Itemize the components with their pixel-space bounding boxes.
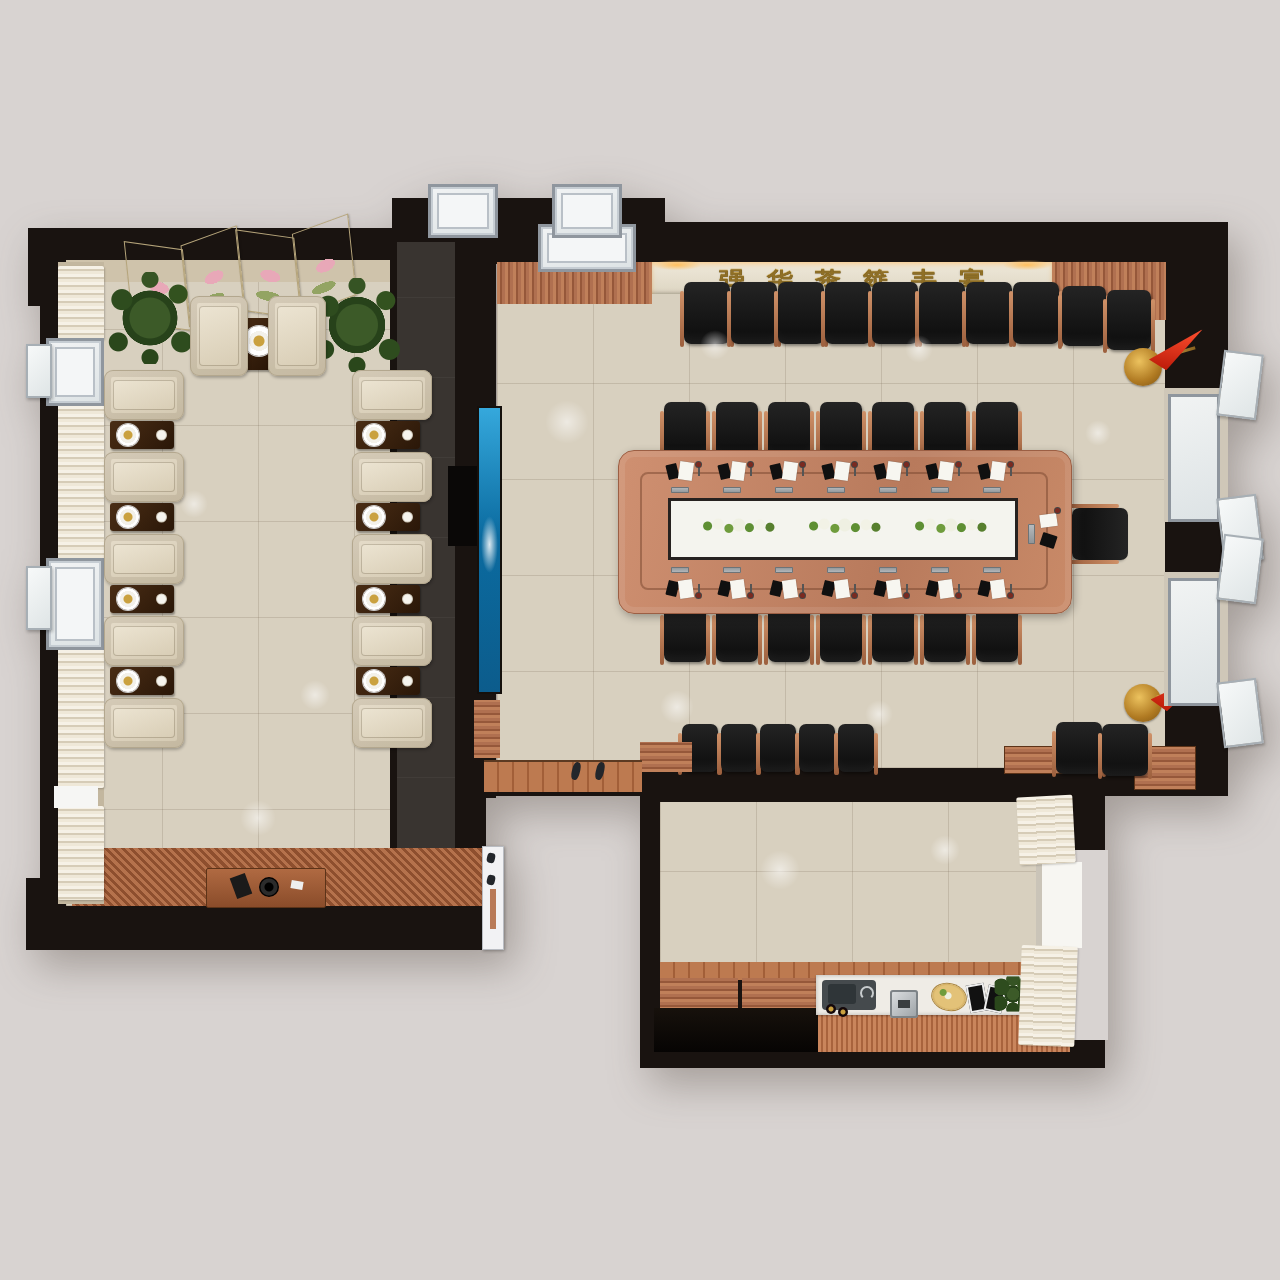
pantry-wood-platform <box>660 978 738 1010</box>
microphone-stem <box>1010 467 1012 476</box>
paper <box>938 579 954 599</box>
control-panel <box>827 487 845 493</box>
white-door-panel <box>482 846 504 950</box>
microphone-stem <box>1010 584 1012 593</box>
reception-armchair <box>104 698 184 748</box>
microphone-stem <box>958 584 960 593</box>
door-hinge <box>486 874 496 886</box>
wall-chair <box>966 282 1012 344</box>
paper <box>782 579 798 599</box>
microphone <box>800 593 805 598</box>
wall-chair <box>778 282 824 344</box>
paper <box>678 461 694 481</box>
paper <box>834 461 850 481</box>
tea-side-table <box>110 585 174 613</box>
wall-chair <box>1013 282 1059 344</box>
wall-chair <box>838 724 874 772</box>
paper <box>730 461 746 481</box>
tea-side-table <box>356 667 420 695</box>
wall-chair <box>760 724 796 772</box>
curtain-left-3 <box>58 642 104 788</box>
microphone <box>1008 593 1013 598</box>
curtain-left-4 <box>58 806 104 900</box>
sign-light-glow-right <box>1004 260 1050 270</box>
pantry-floor <box>660 802 1070 968</box>
control-panel <box>827 567 845 573</box>
open-sash <box>1216 350 1264 420</box>
reception-armchair <box>104 452 184 502</box>
control-panel <box>723 487 741 493</box>
microphone <box>696 462 701 467</box>
window-glass <box>55 347 95 397</box>
table-chair <box>716 606 758 662</box>
wall-chair <box>872 282 918 344</box>
corner-chair <box>1062 286 1106 346</box>
microphone-stem <box>906 467 908 476</box>
microphone-stem <box>750 467 752 476</box>
wall-chair <box>684 282 730 344</box>
reception-armchair <box>352 370 432 420</box>
seat-accessories <box>667 462 703 494</box>
wall-chair <box>721 724 757 772</box>
notebook <box>1039 532 1057 549</box>
microphone-stem <box>802 467 804 476</box>
platform-chair <box>1056 722 1102 774</box>
control-panel <box>879 487 897 493</box>
table-chair <box>872 606 914 662</box>
food-garnish <box>938 988 954 1001</box>
sink-basin <box>828 984 856 1004</box>
seat-accessories <box>875 566 911 598</box>
reception-armchair <box>268 296 326 376</box>
microphone <box>748 462 753 467</box>
left-window-sash-1 <box>26 344 52 398</box>
tea-side-table <box>356 503 420 531</box>
table-chair <box>924 606 966 662</box>
paper <box>990 579 1006 599</box>
tea-side-table <box>356 421 420 449</box>
flower-centerpiece <box>806 516 882 536</box>
sign-light-glow-left <box>654 260 700 270</box>
paper <box>886 461 902 481</box>
microphone-stem <box>698 584 700 593</box>
sideboard <box>206 868 326 908</box>
control-panel <box>723 567 741 573</box>
seat-accessories <box>719 462 755 494</box>
conference-top-wall <box>640 222 1228 264</box>
wall-chair <box>799 724 835 772</box>
window-glass <box>561 193 613 229</box>
wood-slat-panel <box>474 700 500 758</box>
table-chair <box>768 606 810 662</box>
pantry-window-sill <box>1036 862 1082 948</box>
left-window-sash-2 <box>26 566 52 630</box>
microphone <box>904 593 909 598</box>
potted-plant-left <box>114 280 186 356</box>
pantry-curtain-top <box>1016 795 1075 866</box>
platform-chair <box>1102 724 1148 776</box>
microphone-stem <box>802 584 804 593</box>
right-window-pane <box>1168 394 1220 522</box>
microphone <box>748 593 753 598</box>
microphone-stem <box>698 467 700 476</box>
seat-accessories <box>719 566 755 598</box>
control-panel <box>775 567 793 573</box>
reception-armchair <box>104 534 184 584</box>
wall-chair <box>731 282 777 344</box>
flower-centerpiece <box>912 516 988 536</box>
reception-armchair <box>352 698 432 748</box>
tea-side-table <box>110 667 174 695</box>
control-panel <box>671 567 689 573</box>
head-seat-accessories <box>1028 508 1062 560</box>
flag-stand-base <box>1124 348 1162 386</box>
microphone-stem <box>750 584 752 593</box>
entrance-threshold <box>484 760 642 792</box>
open-sash <box>1216 678 1264 748</box>
control-panel <box>1028 524 1035 544</box>
floorplan-scene: 强华茶筵丰宴 <box>0 0 1280 1280</box>
seat-accessories <box>823 566 859 598</box>
curtain-left-2 <box>58 398 104 560</box>
open-sash <box>1216 534 1264 604</box>
seat-accessories <box>875 462 911 494</box>
door-copper-strip <box>490 889 496 929</box>
wood-step <box>640 742 692 772</box>
control-panel <box>983 487 1001 493</box>
table-chair <box>664 606 706 662</box>
microphone <box>852 462 857 467</box>
window-glass <box>437 193 489 229</box>
control-panel <box>671 487 689 493</box>
pantry-wood-platform <box>742 978 818 1010</box>
reception-armchair <box>190 296 248 376</box>
control-panel <box>879 567 897 573</box>
reception-armchair <box>104 616 184 666</box>
tea-side-table <box>110 503 174 531</box>
control-panel <box>931 487 949 493</box>
left-window-1 <box>46 338 104 406</box>
table-chair <box>976 606 1018 662</box>
seat-accessories <box>927 462 963 494</box>
microphone-stem <box>854 584 856 593</box>
reception-armchair <box>352 616 432 666</box>
tea-side-table <box>356 585 420 613</box>
right-window-pane <box>1168 578 1220 706</box>
tea-side-table <box>110 421 174 449</box>
pantry-dark-cabinet <box>654 1008 820 1052</box>
microphone-stem <box>854 467 856 476</box>
card-item <box>290 880 303 890</box>
building: 强华茶筵丰宴 <box>0 0 1280 1280</box>
curtain-left-1 <box>58 266 104 340</box>
head-chair <box>1072 508 1128 560</box>
faucet <box>860 986 874 1000</box>
paper <box>678 579 694 599</box>
corner-chair <box>1107 290 1151 350</box>
seat-accessories <box>823 462 859 494</box>
seat-accessories <box>927 566 963 598</box>
microphone <box>852 593 857 598</box>
seat-accessories <box>771 462 807 494</box>
door-hinge <box>486 852 496 864</box>
seat-accessories <box>667 566 703 598</box>
microphone-stem <box>958 467 960 476</box>
flower-centerpiece <box>700 516 776 536</box>
left-window-2 <box>46 558 104 650</box>
camera-item <box>230 873 253 899</box>
top-window-1 <box>428 184 498 238</box>
wall-chair <box>919 282 965 344</box>
reception-armchair <box>352 452 432 502</box>
potted-plant-right <box>320 286 394 364</box>
wine-bottle <box>826 1004 836 1014</box>
seat-accessories <box>979 462 1015 494</box>
microphone <box>800 462 805 467</box>
microphone <box>904 462 909 467</box>
window-gap-left <box>54 786 98 808</box>
paper <box>990 461 1006 481</box>
paper <box>730 579 746 599</box>
control-panel <box>775 487 793 493</box>
speaker-item <box>259 877 279 897</box>
microphone <box>956 462 961 467</box>
seat-accessories <box>771 566 807 598</box>
microphone <box>956 593 961 598</box>
paper <box>886 579 902 599</box>
top-window-2 <box>552 184 622 238</box>
coffee-machine <box>890 990 918 1018</box>
paper <box>782 461 798 481</box>
microphone <box>696 593 701 598</box>
reception-armchair <box>352 534 432 584</box>
wall-chair <box>825 282 871 344</box>
led-display-screen <box>477 406 502 694</box>
reception-armchair <box>104 370 184 420</box>
paper <box>834 579 850 599</box>
seat-accessories <box>979 566 1015 598</box>
control-panel <box>983 567 1001 573</box>
pantry-curtain-bottom <box>1018 945 1077 1047</box>
microphone <box>1008 462 1013 467</box>
microphone-stem <box>906 584 908 593</box>
paper <box>1039 513 1058 528</box>
microphone <box>1055 508 1060 513</box>
wine-bottle <box>838 1007 848 1017</box>
window-glass <box>55 567 95 641</box>
machine-slot <box>898 1000 910 1008</box>
control-panel <box>931 567 949 573</box>
paper <box>938 461 954 481</box>
table-chair <box>820 606 862 662</box>
